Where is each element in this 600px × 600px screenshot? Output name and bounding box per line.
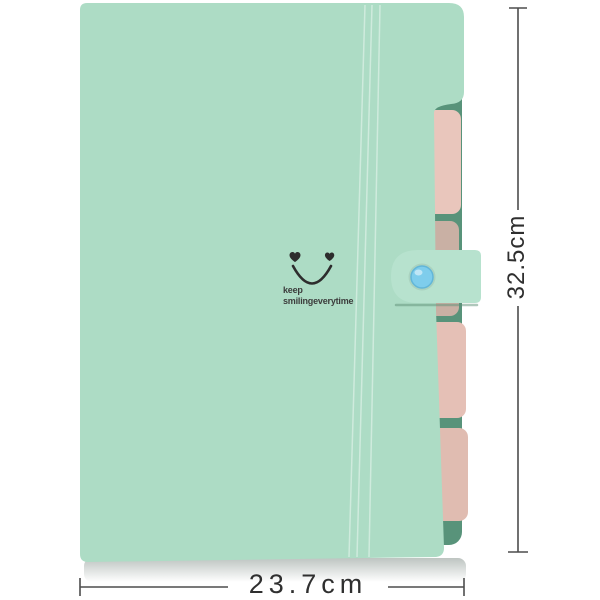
width-dimension-label: 23.7cm	[232, 569, 384, 600]
cover-text: keep smilingeverytime	[283, 285, 353, 307]
snap-strap	[391, 250, 481, 303]
cover-text-line1: keep	[283, 285, 353, 296]
height-dimension-label: 32.5cm	[503, 215, 531, 300]
snap-button-highlight	[415, 270, 423, 276]
cover-text-line2: smilingeverytime	[283, 296, 353, 307]
snap-button	[411, 266, 433, 288]
product-image: keep smilingeverytime 23.7cm 32.5cm	[0, 0, 600, 600]
